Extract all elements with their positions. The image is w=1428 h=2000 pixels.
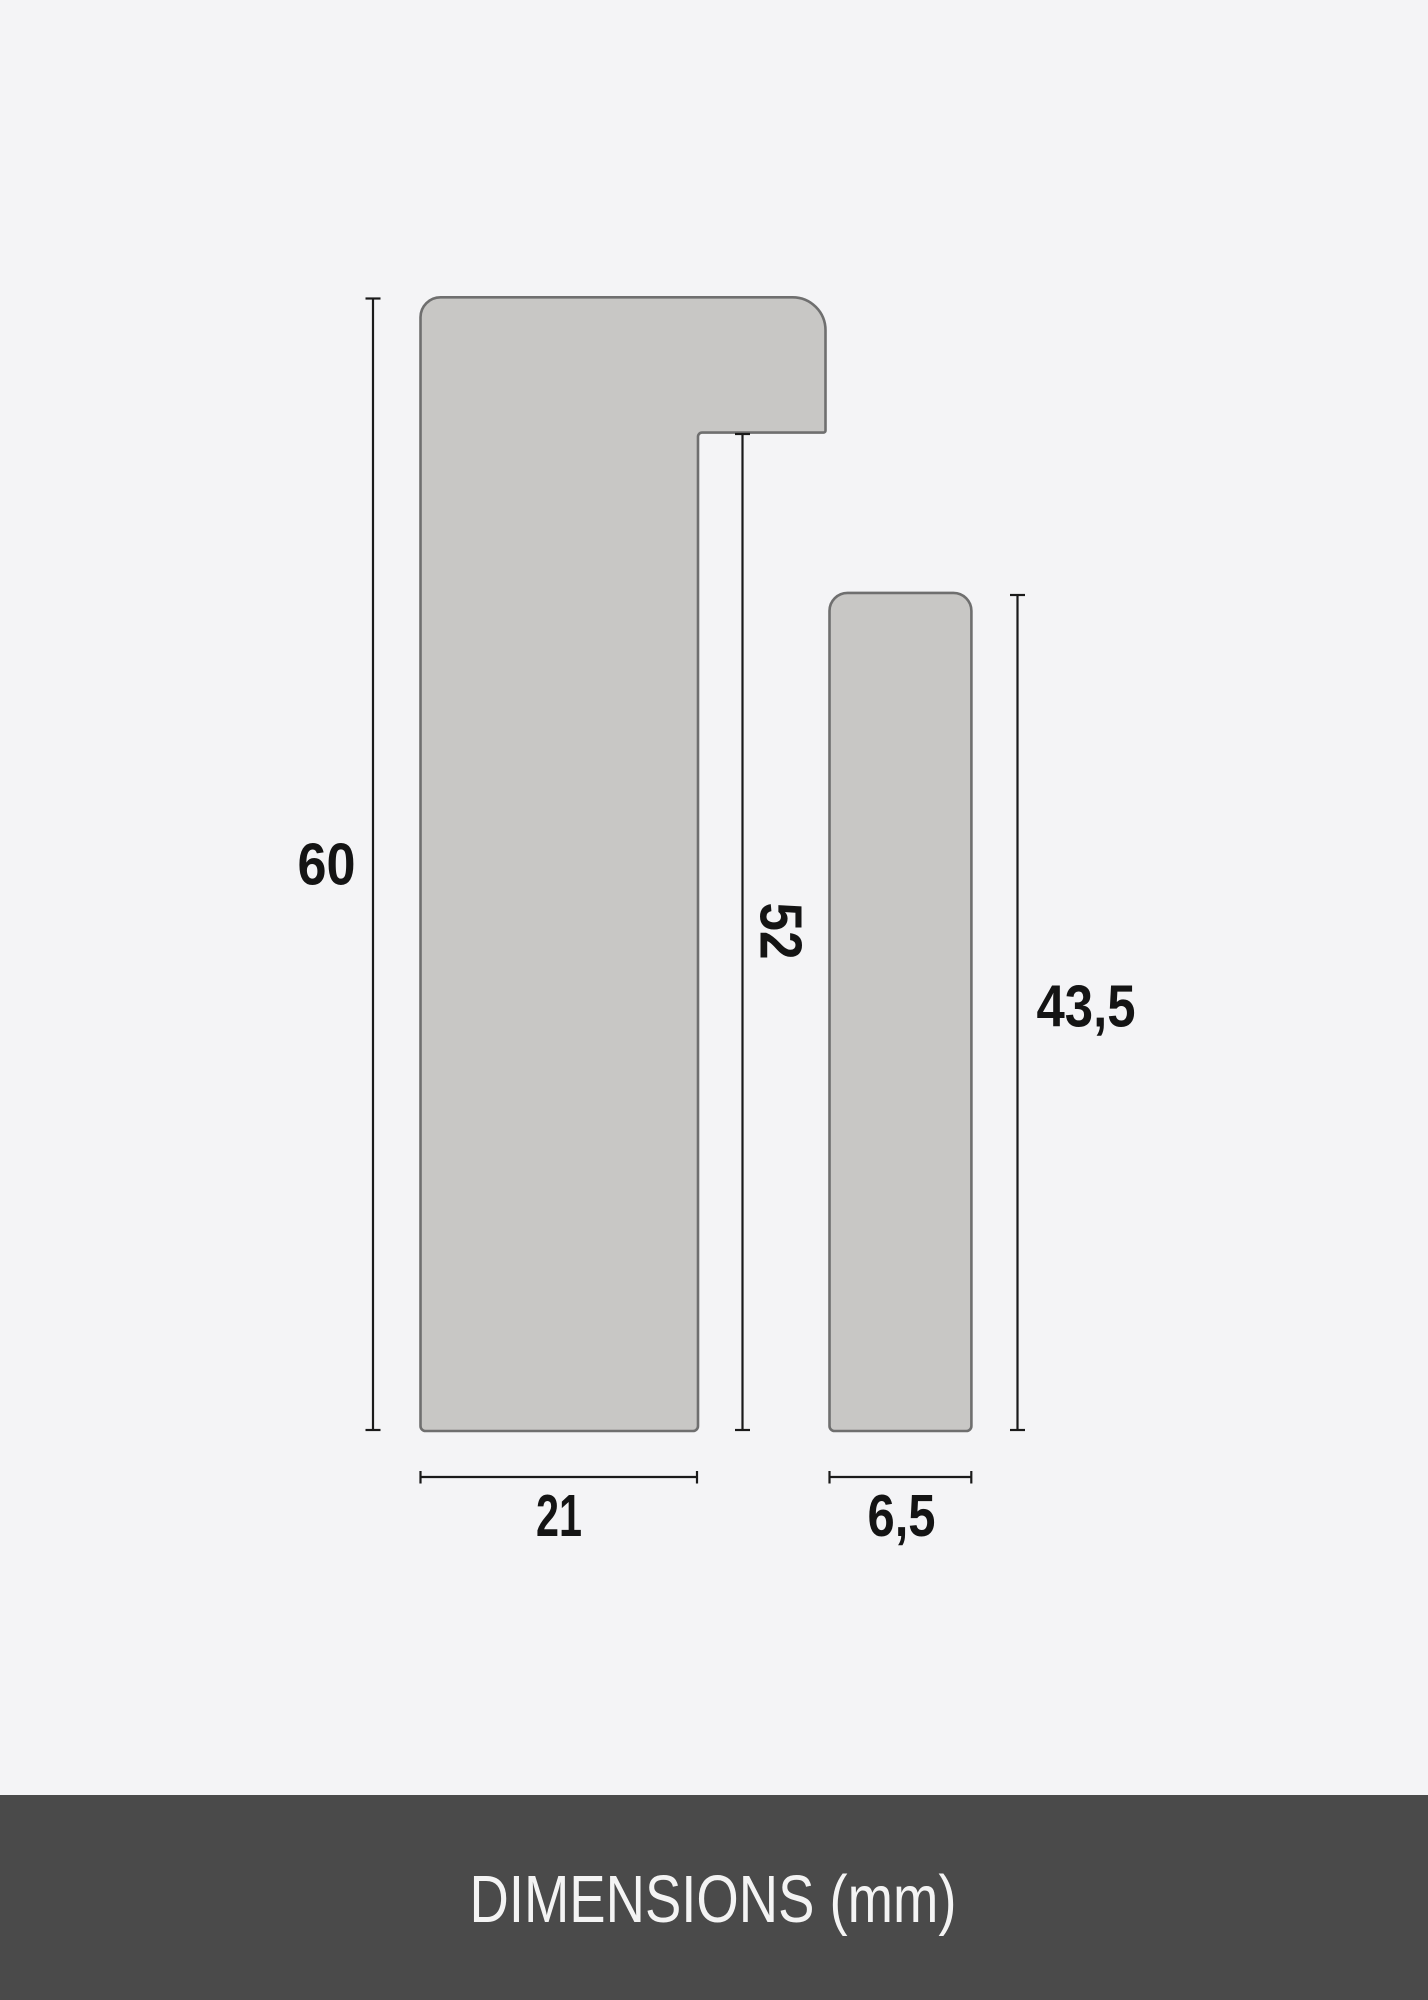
svg-text:43,5: 43,5 <box>1037 973 1136 1039</box>
svg-text:6,5: 6,5 <box>868 1483 936 1549</box>
svg-text:60: 60 <box>298 832 356 898</box>
svg-text:DIMENSIONS (mm): DIMENSIONS (mm) <box>470 1862 957 1937</box>
svg-text:52: 52 <box>748 903 814 960</box>
svg-text:21: 21 <box>536 1483 582 1549</box>
